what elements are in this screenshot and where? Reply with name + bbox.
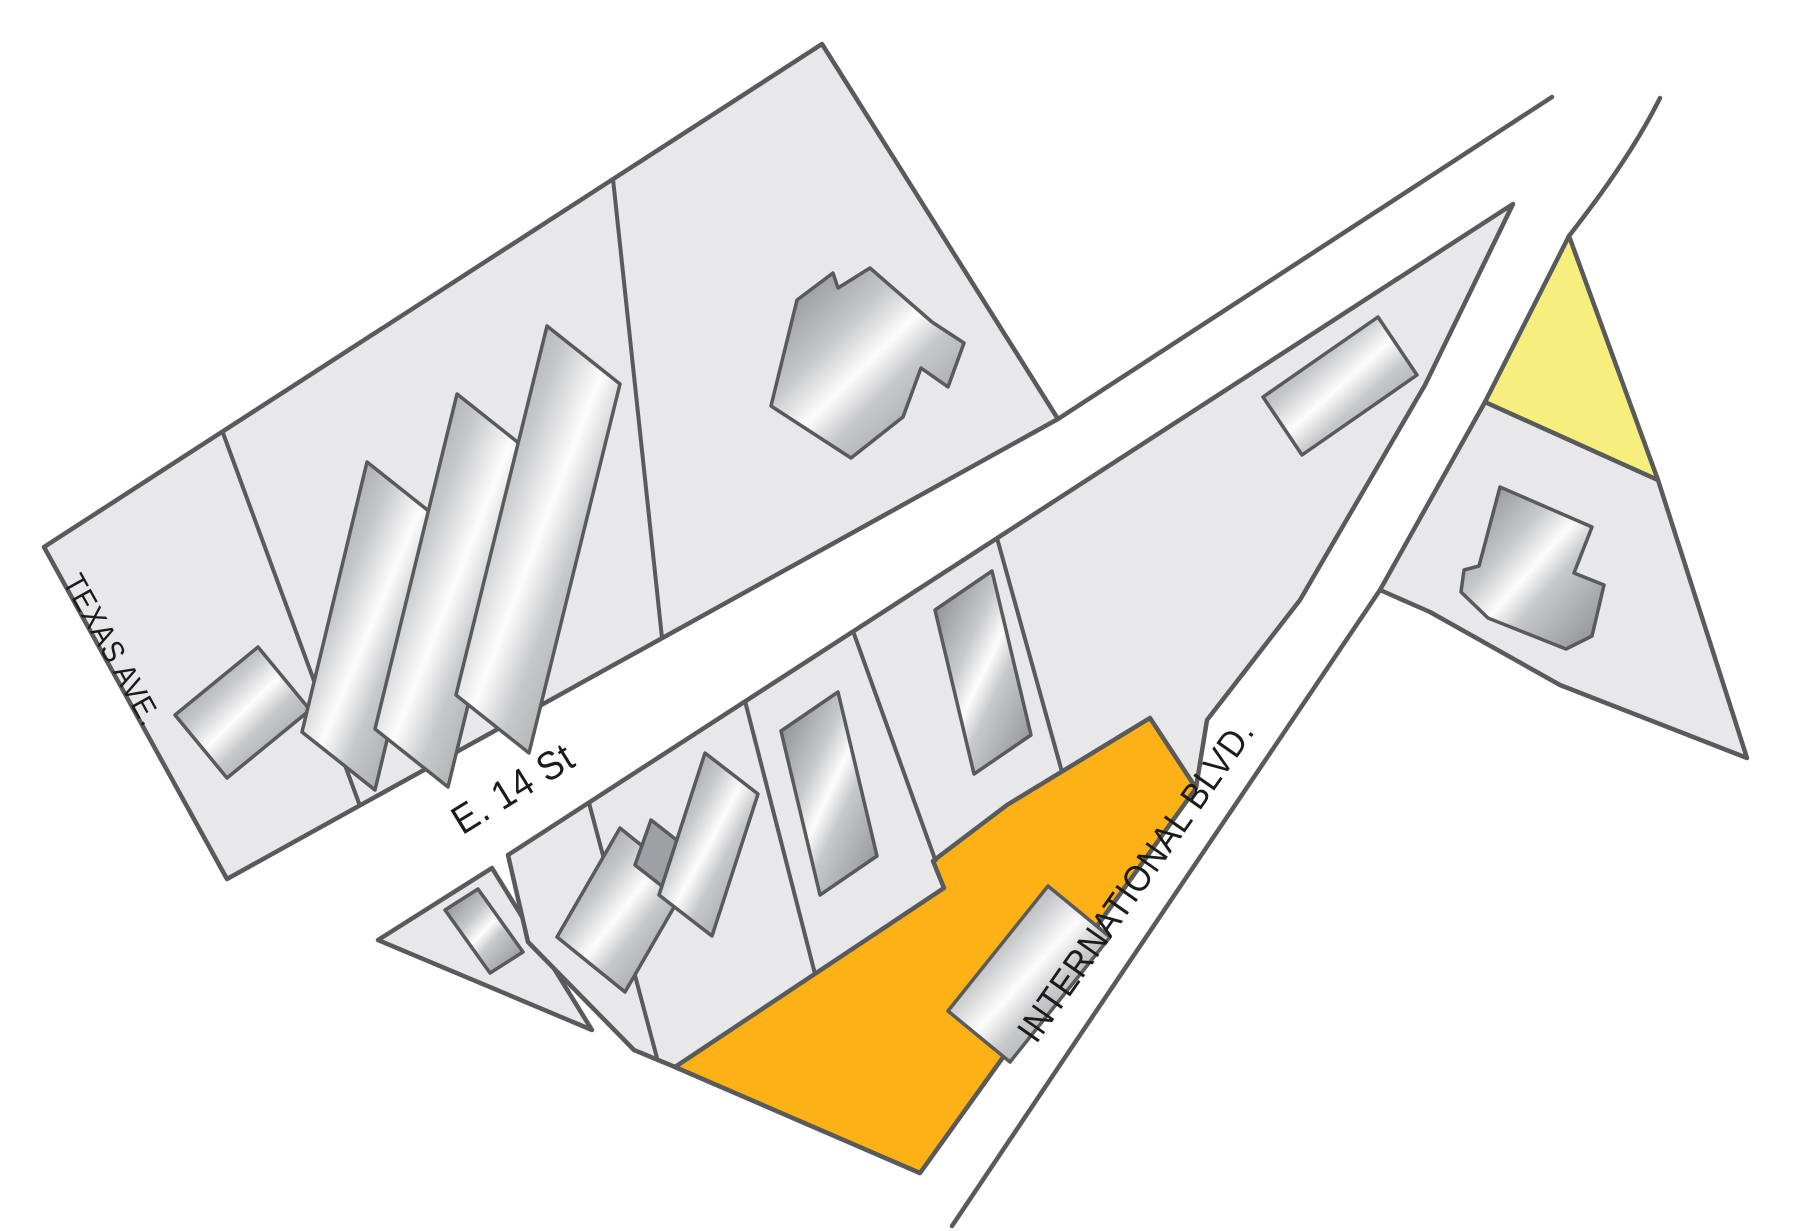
fork-road-curve-line	[1569, 98, 1660, 236]
site-map-page: TEXAS AVE. E. 14 St INTERNATIONAL BLVD.	[0, 0, 1800, 1231]
site-map: TEXAS AVE. E. 14 St INTERNATIONAL BLVD.	[0, 0, 1800, 1231]
